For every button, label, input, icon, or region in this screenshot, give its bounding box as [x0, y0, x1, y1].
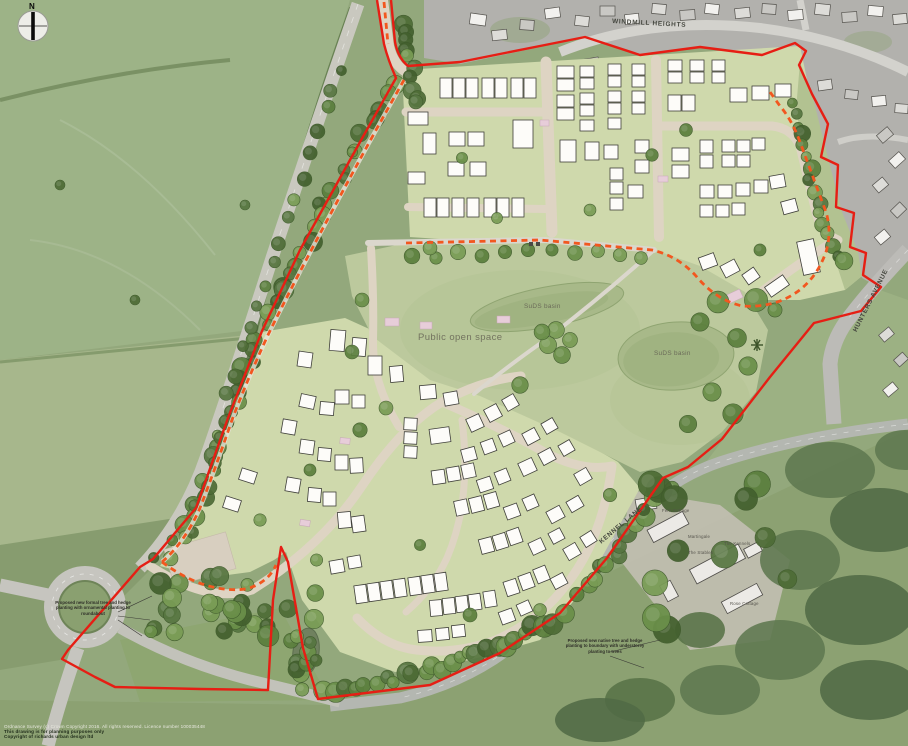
footer-copyright: Ordnance Survey (c) Crown Copyright 2016… [4, 724, 205, 739]
masterplan-map: N WINDMILL HEIGHTS HUNTERS AVENUE KENNEL… [0, 0, 908, 746]
design-copyright-line: Copyright of richards urban design ltd [4, 734, 205, 739]
roundabout [44, 566, 126, 648]
masterplan-drawing [0, 0, 908, 746]
north-arrow [18, 11, 48, 41]
